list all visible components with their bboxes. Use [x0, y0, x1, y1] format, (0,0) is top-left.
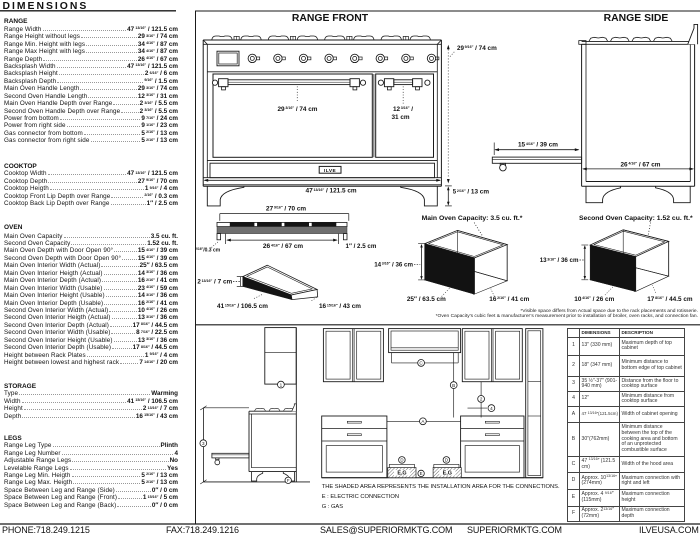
svg-text:1″ / 2.5 cm: 1″ / 2.5 cm [346, 243, 377, 250]
svg-text:2: 2 [480, 397, 483, 402]
svg-text:D: D [400, 457, 403, 462]
svg-text:15 4/16″ / 39 cm: 15 4/16″ / 39 cm [518, 142, 558, 149]
svg-text:Second Oven Capacity: 1.52 cu.: Second Oven Capacity: 1.52 cu. ft.* [579, 215, 693, 222]
svg-text:ILVE: ILVE [324, 168, 337, 174]
svg-text:13 3/16″ / 36 cm: 13 3/16″ / 36 cm [540, 257, 579, 264]
svg-text:17 8/16″ / 44.5 cm: 17 8/16″ / 44.5 cm [647, 296, 693, 303]
svg-text:B: B [452, 383, 455, 388]
svg-text:29 9/16″ / 74 cm: 29 9/16″ / 74 cm [457, 45, 497, 52]
svg-text:10 4/16″ / 26 cm: 10 4/16″ / 26 cm [574, 296, 614, 303]
svg-text:12 3/16″ /: 12 3/16″ / [393, 106, 413, 113]
svg-text:D: D [445, 457, 448, 462]
svg-text:25″ / 63.5 cm: 25″ / 63.5 cm [407, 296, 446, 303]
svg-text:F: F [287, 478, 290, 483]
svg-text:E: E [420, 471, 423, 476]
svg-text:26 4/16″ / 67 cm: 26 4/16″ / 67 cm [263, 243, 304, 250]
svg-text:4: 4 [490, 406, 493, 411]
svg-text:3: 3 [202, 441, 205, 446]
svg-text:26 4/16″ / 67 cm: 26 4/16″ / 67 cm [621, 161, 661, 168]
svg-text:1: 1 [280, 382, 283, 387]
svg-text:27 9/16″ / 70 cm: 27 9/16″ / 70 cm [266, 205, 307, 212]
svg-text:29 3/16″ / 74 cm: 29 3/16″ / 74 cm [278, 106, 318, 113]
svg-text:2/16″/0.3 cm: 2/16″/0.3 cm [195, 247, 221, 253]
svg-text:16 15/16″ / 43 cm: 16 15/16″ / 43 cm [319, 303, 361, 310]
svg-text:5 2/16″ / 13 cm: 5 2/16″ / 13 cm [453, 189, 490, 196]
svg-text:47 13/16″ / 121.5 cm: 47 13/16″ / 121.5 cm [305, 188, 356, 195]
svg-text:31 cm: 31 cm [391, 114, 409, 121]
svg-text:E,G: E,G [443, 471, 452, 477]
svg-text:E,G: E,G [397, 471, 406, 477]
svg-text:14 3/16″ / 36 cm: 14 3/16″ / 36 cm [374, 261, 413, 268]
svg-text:41 15/16″ / 106.5 cm: 41 15/16″ / 106.5 cm [217, 303, 268, 310]
svg-text:16 2/16″ / 41 cm: 16 2/16″ / 41 cm [489, 296, 529, 303]
svg-text:Main Oven Capacity: 3.5 cu. ft: Main Oven Capacity: 3.5 cu. ft.* [422, 215, 523, 222]
svg-text:2 13/16″ / 7 cm: 2 13/16″ / 7 cm [197, 279, 232, 286]
